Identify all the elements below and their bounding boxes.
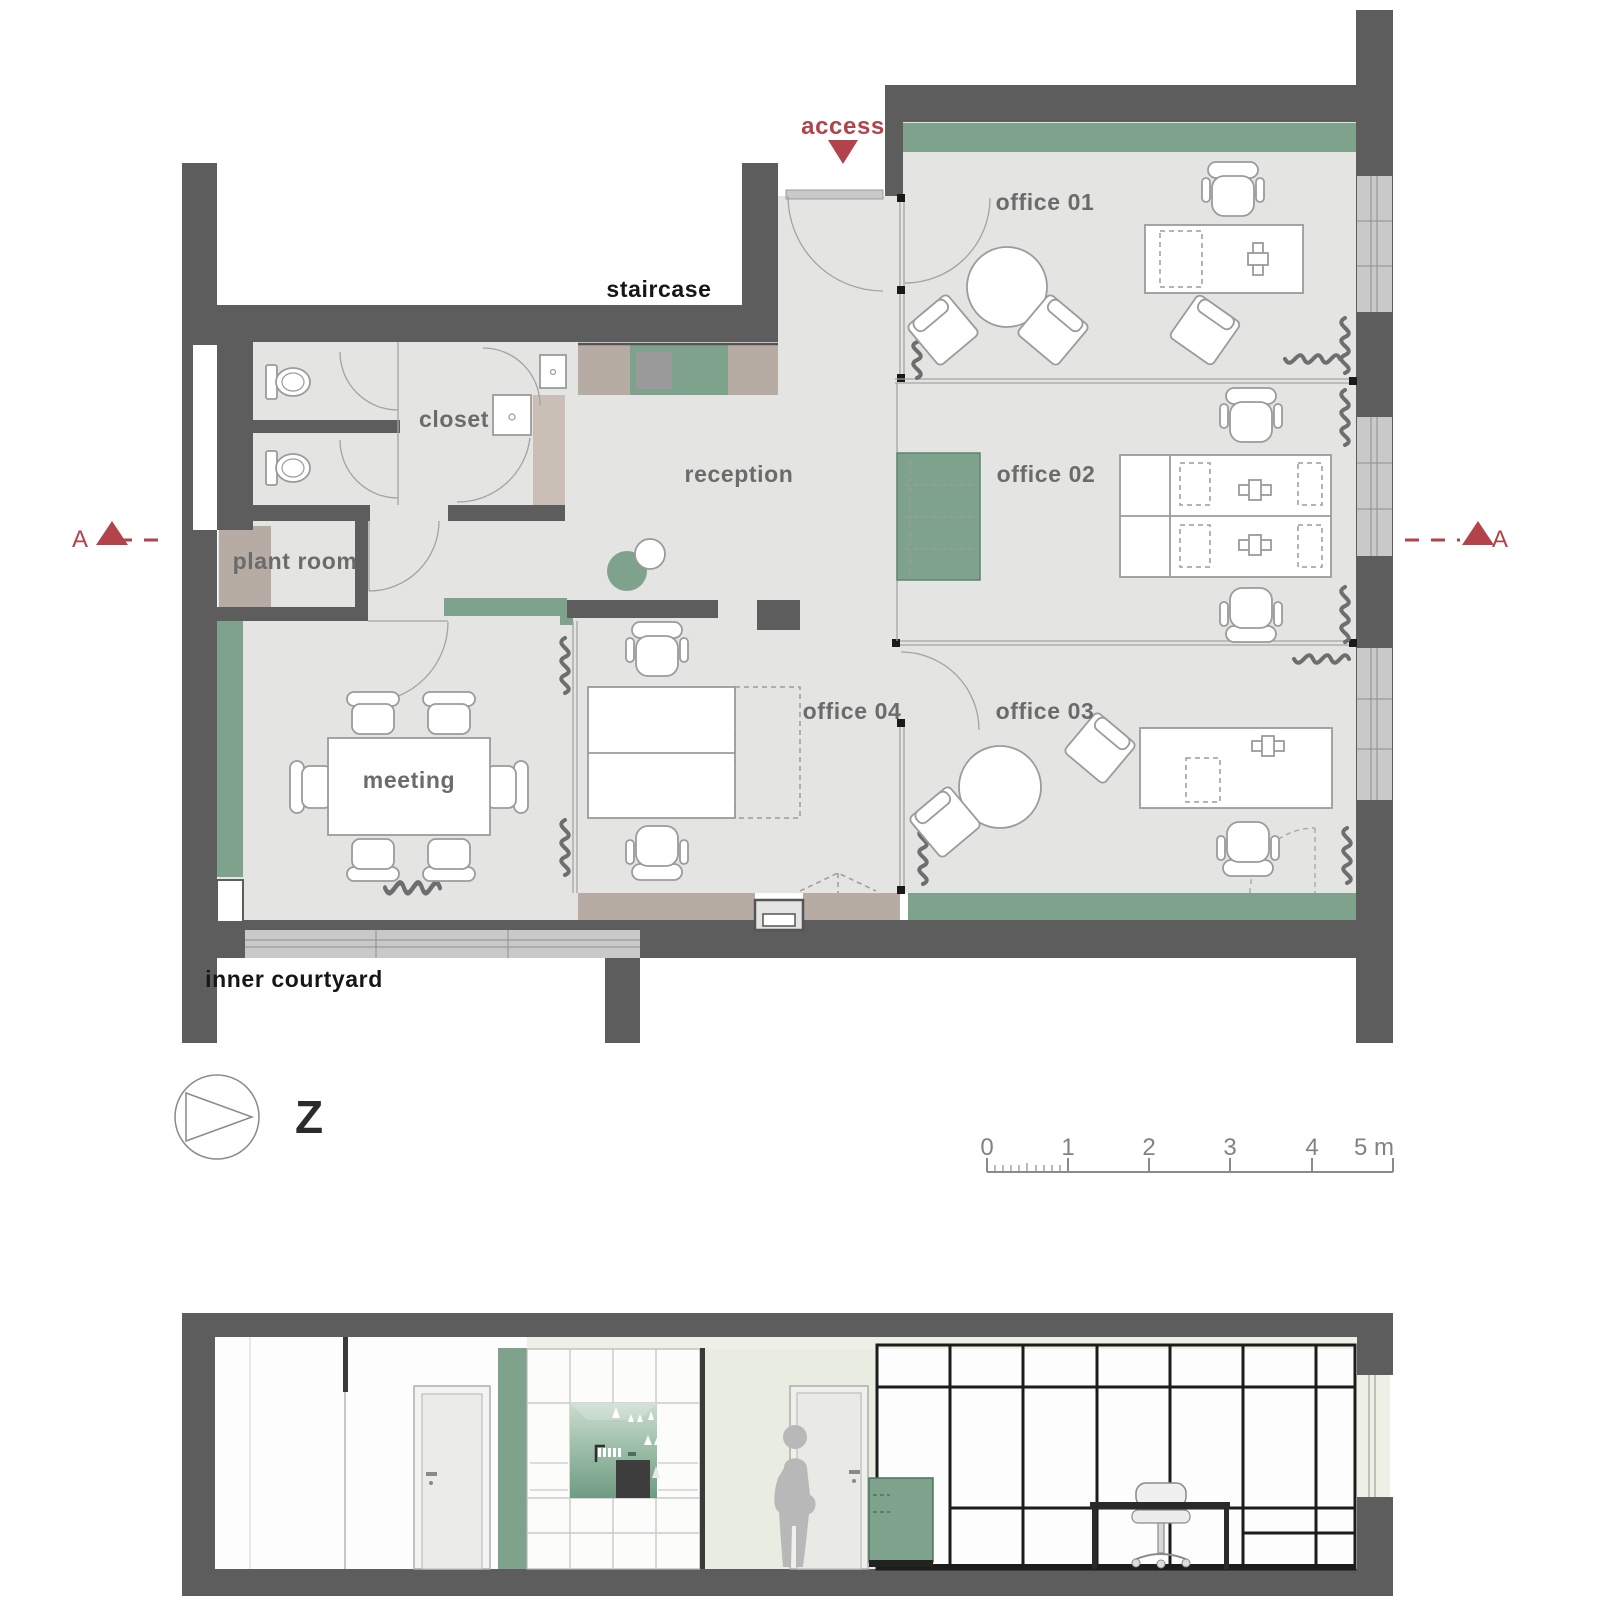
- label-office-03: office 03: [996, 698, 1095, 724]
- section-top-slab: [182, 1313, 1393, 1337]
- meeting-window-niche: [217, 880, 243, 922]
- courtyard-glazing: [245, 930, 640, 958]
- architectural-drawing: 0 1 2 3 4 5 m: [0, 0, 1600, 1600]
- small-sink: [540, 355, 566, 388]
- north-compass: [175, 1075, 259, 1159]
- scale-label-4: 4: [1305, 1134, 1318, 1161]
- kitchen-sink: [636, 352, 672, 389]
- coffee-machine-icon: [616, 1460, 650, 1498]
- meeting-accent-wall: [217, 618, 243, 877]
- label-access: access: [801, 113, 885, 140]
- scale-label-2: 2: [1142, 1134, 1155, 1161]
- scale-label-0: 0: [980, 1134, 993, 1161]
- scale-label-3: 3: [1223, 1134, 1236, 1161]
- section-marker-left: [96, 521, 170, 545]
- reception-accent-wall: [444, 598, 567, 616]
- shaft: [193, 345, 217, 530]
- door-handle-icon: [849, 1470, 860, 1474]
- label-reception: reception: [685, 461, 794, 487]
- desk-top: [1090, 1502, 1230, 1509]
- label-north: Z: [295, 1091, 323, 1143]
- section-cabinet-wall: [527, 1348, 705, 1569]
- section-bottom-slab: [182, 1569, 1393, 1596]
- desk: [1145, 225, 1303, 293]
- access-arrow-icon: [828, 140, 858, 164]
- section-arrow-icon: [1462, 521, 1494, 545]
- label-section-a-left: A: [72, 526, 88, 553]
- section-left-wall: [182, 1313, 215, 1596]
- section-right-wall: [1357, 1335, 1393, 1596]
- section-marker-right: [1405, 521, 1494, 545]
- desk: [1140, 728, 1332, 808]
- section-green-cabinet: [869, 1478, 933, 1567]
- label-plant-room: plant room: [233, 548, 358, 574]
- label-office-04: office 04: [803, 698, 902, 724]
- white-pouf: [635, 539, 665, 569]
- section-drawing: [182, 1313, 1393, 1596]
- access-marker: [828, 140, 858, 164]
- floor-plan-svg: 0 1 2 3 4 5 m: [0, 0, 1600, 1600]
- office03-accent-wall: [908, 893, 1356, 922]
- section-door-1: [414, 1386, 490, 1569]
- section-arrow-icon: [96, 521, 128, 545]
- label-inner-courtyard: inner courtyard: [205, 966, 383, 992]
- label-office-02: office 02: [997, 461, 1096, 487]
- office01-accent-wall: [903, 123, 1356, 152]
- scale-label-5m: 5 m: [1354, 1134, 1394, 1161]
- label-meeting: meeting: [363, 767, 455, 793]
- scale-bar: 0 1 2 3 4 5 m: [980, 1134, 1394, 1172]
- scale-label-1: 1: [1061, 1134, 1074, 1161]
- label-section-a-right: A: [1492, 526, 1508, 553]
- door-handle-icon: [426, 1472, 437, 1476]
- label-staircase: staircase: [606, 276, 711, 302]
- label-office-01: office 01: [996, 189, 1095, 215]
- sink: [493, 395, 531, 435]
- label-closet: closet: [419, 406, 489, 432]
- closet-cabinet: [533, 395, 565, 517]
- entrance-door: [786, 190, 883, 199]
- section-green-wall: [498, 1348, 527, 1569]
- kitchenette-counter: [578, 344, 778, 395]
